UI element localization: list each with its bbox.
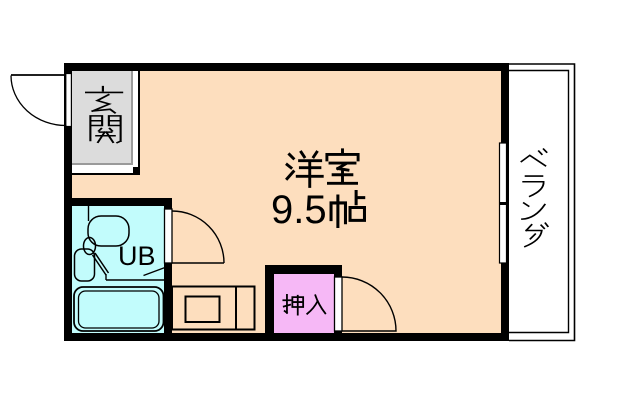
svg-text:9.5: 9.5 <box>271 188 327 232</box>
svg-text:UB: UB <box>118 241 156 271</box>
